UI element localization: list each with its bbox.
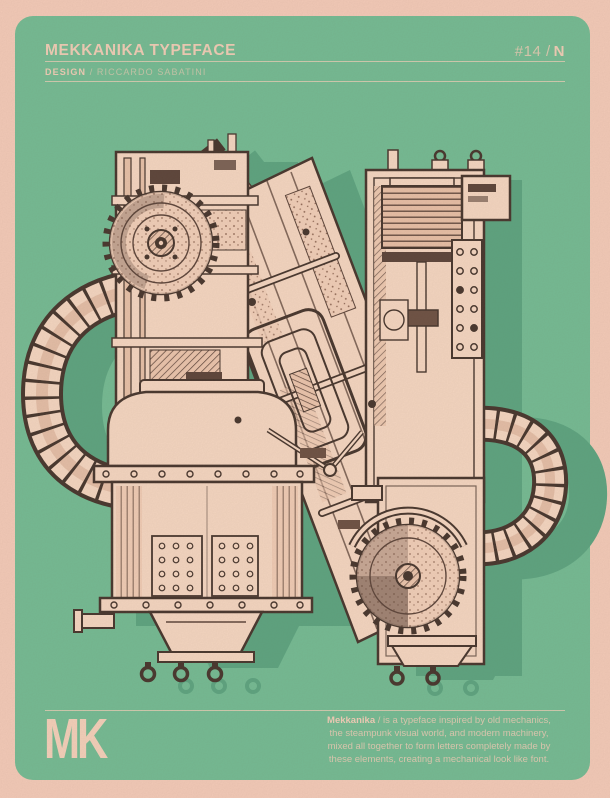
description-line: Mekkanika / is a typeface inspired by ol… [313, 714, 565, 727]
header-divider-bottom [45, 81, 565, 82]
footer-divider [45, 710, 565, 711]
description-line: the steampunk visual world, and modern m… [313, 727, 565, 740]
design-credit: DESIGN / RICCARDO SABATINI [45, 67, 206, 77]
issue-number: #14 /N [515, 43, 565, 60]
poster-title: MEKKANIKA TYPEFACE [45, 42, 236, 60]
green-panel [15, 16, 590, 780]
mk-logo: MK [44, 711, 105, 768]
issue-letter: N [554, 43, 565, 60]
description-lead-bold: Mekkanika [327, 715, 375, 726]
description-line: mixed all together to form letters compl… [313, 740, 565, 753]
description-line: these elements, creating a mechanical lo… [313, 753, 565, 766]
poster-frame: MEKKANIKA TYPEFACE #14 /N DESIGN / RICCA… [0, 0, 610, 798]
issue-prefix: #14 / [515, 43, 551, 60]
description-line1-rest: / is a typeface inspired by old mechanic… [375, 715, 551, 726]
credit-label: DESIGN [45, 67, 86, 77]
typeface-description: Mekkanika / is a typeface inspired by ol… [313, 714, 565, 766]
credit-value: / RICCARDO SABATINI [90, 67, 207, 77]
header-divider-top [45, 61, 565, 62]
